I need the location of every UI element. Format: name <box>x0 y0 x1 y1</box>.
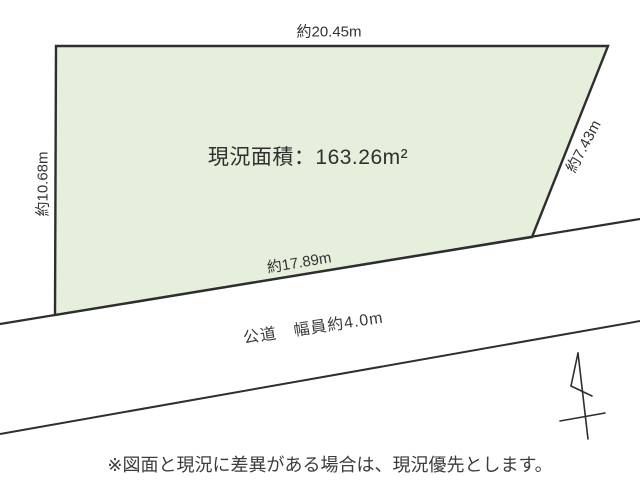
road-lower-line <box>0 321 640 434</box>
dimension-left-label: 約10.68m <box>32 151 53 216</box>
plot-area-value: 163.26m² <box>315 146 408 169</box>
plot-area-label: 現況面積：163.26m² <box>208 141 408 171</box>
site-plan-canvas: 約20.45m 約10.68m 約7.43m 約17.89m 現況面積：163.… <box>0 0 640 489</box>
site-plan-drawing <box>0 0 640 489</box>
plot-area-caption: 現況面積： <box>208 146 316 169</box>
land-plot-shape <box>55 46 608 315</box>
dimension-top-label: 約20.45m <box>296 21 361 42</box>
disclaimer-note: ※図面と現況に差異がある場合は、現況優先とします。 <box>107 451 552 477</box>
north-arrow-icon <box>560 353 605 439</box>
